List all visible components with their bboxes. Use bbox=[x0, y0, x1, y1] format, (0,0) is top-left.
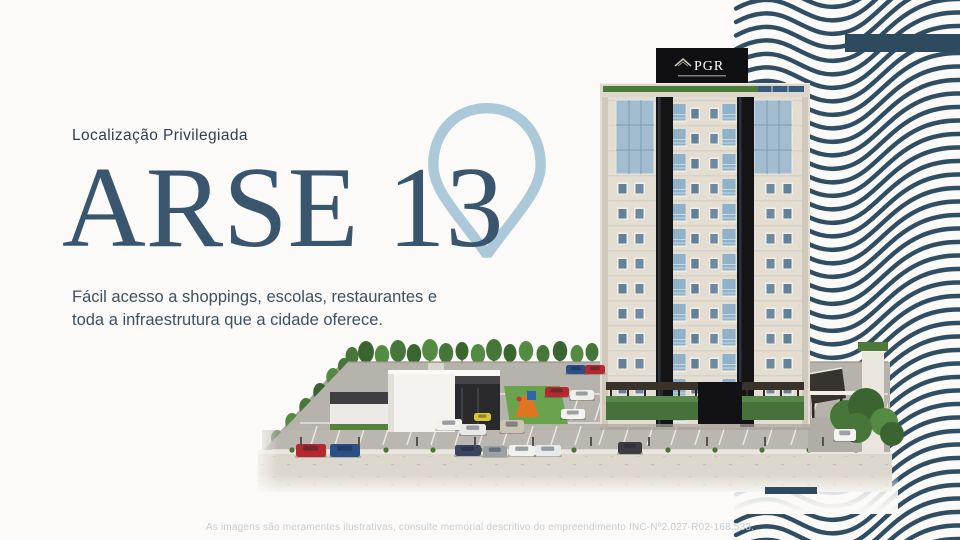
description-text: Fácil acesso a shoppings, escolas, resta… bbox=[72, 286, 437, 332]
disclaimer-text: As imagens são meramentes ilustrativas, … bbox=[0, 522, 960, 533]
eyebrow-label: Localização Privilegiada bbox=[72, 127, 248, 145]
accent-bar-top-right bbox=[845, 34, 960, 52]
tower: PGR bbox=[600, 48, 810, 430]
accent-bar-bottom-right bbox=[765, 487, 817, 494]
page-title: ARSE 13 bbox=[62, 150, 504, 266]
description-line-1: Fácil acesso a shoppings, escolas, resta… bbox=[72, 288, 437, 306]
sign-logo-text: PGR bbox=[694, 59, 724, 74]
pgr-sign: PGR bbox=[656, 48, 748, 86]
description-line-2: toda a infraestrutura que a cidade ofere… bbox=[72, 311, 383, 329]
slide: PGR bbox=[0, 0, 960, 540]
